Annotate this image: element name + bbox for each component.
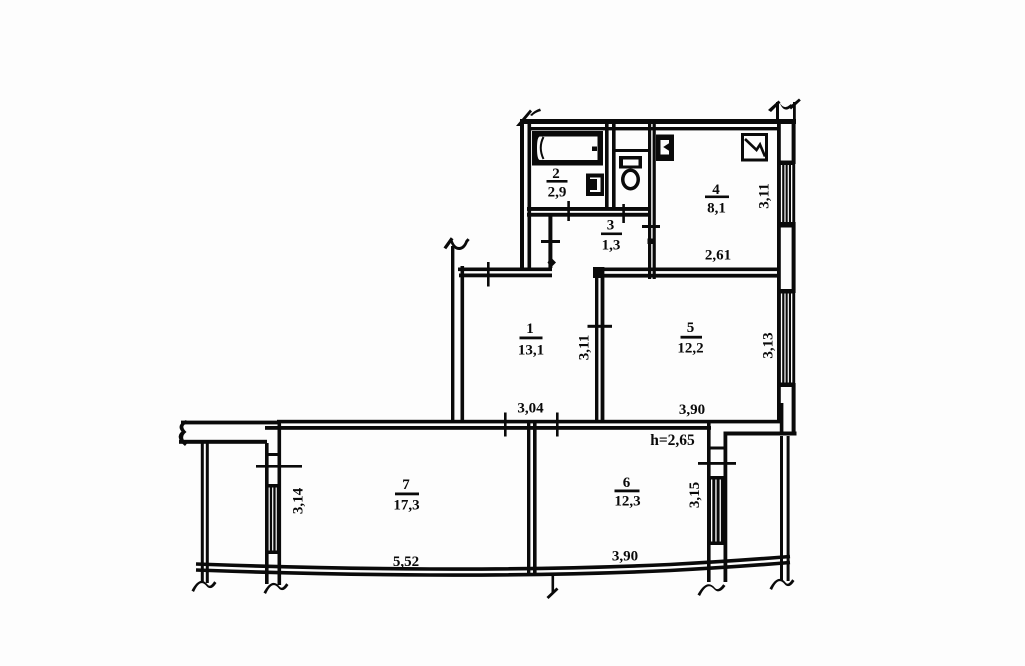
svg-text:13,1: 13,1 [518, 343, 544, 359]
svg-text:7: 7 [402, 477, 410, 493]
svg-text:3,90: 3,90 [679, 402, 705, 418]
svg-text:3,11: 3,11 [757, 183, 773, 208]
svg-text:6: 6 [623, 475, 631, 491]
svg-text:3: 3 [607, 218, 615, 234]
svg-text:3,14: 3,14 [291, 487, 307, 514]
svg-text:3,15: 3,15 [687, 482, 703, 508]
svg-text:1,3: 1,3 [602, 238, 621, 254]
svg-text:3,11: 3,11 [577, 335, 593, 360]
svg-text:3,13: 3,13 [761, 332, 777, 358]
svg-text:17,3: 17,3 [393, 498, 419, 514]
svg-text:5: 5 [687, 320, 695, 336]
svg-text:3,90: 3,90 [612, 549, 638, 565]
svg-text:12,2: 12,2 [677, 341, 703, 357]
svg-text:h=2,65: h=2,65 [650, 432, 695, 449]
svg-text:3,04: 3,04 [517, 401, 544, 417]
svg-text:2,61: 2,61 [705, 248, 731, 264]
svg-text:2,9: 2,9 [548, 185, 567, 201]
svg-text:8,1: 8,1 [707, 201, 726, 217]
svg-text:12,3: 12,3 [614, 494, 640, 510]
svg-text:2: 2 [552, 166, 560, 182]
svg-text:1: 1 [526, 321, 534, 337]
